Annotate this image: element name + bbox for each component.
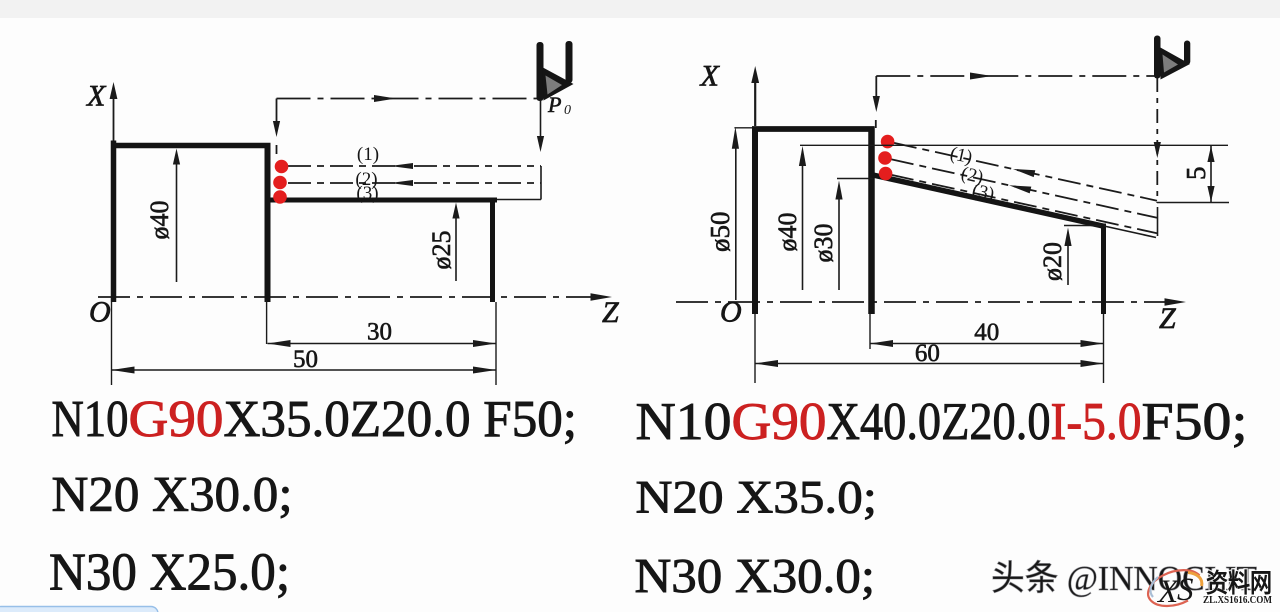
svg-text:N30 X30.0;: N30 X30.0; bbox=[635, 548, 876, 603]
svg-text:40: 40 bbox=[974, 319, 999, 346]
svg-text:N10G90X35.0Z20.0 F50;: N10G90X35.0Z20.0 F50; bbox=[52, 391, 578, 448]
svg-text:60: 60 bbox=[915, 340, 940, 367]
svg-text:Z: Z bbox=[602, 296, 619, 329]
svg-text:N30 X25.0;: N30 X25.0; bbox=[49, 544, 290, 602]
svg-text:ZL.XS1616.COM: ZL.XS1616.COM bbox=[1203, 595, 1272, 606]
svg-text:(1): (1) bbox=[357, 144, 379, 165]
svg-text:30: 30 bbox=[367, 319, 392, 346]
svg-text:ø40: ø40 bbox=[773, 213, 802, 252]
svg-text:资料网: 资料网 bbox=[1206, 569, 1272, 598]
svg-text:P: P bbox=[547, 92, 561, 117]
svg-text:O: O bbox=[89, 296, 111, 329]
svg-text:5: 5 bbox=[1181, 167, 1211, 181]
svg-text:(3): (3) bbox=[356, 183, 378, 204]
svg-text:S: S bbox=[1177, 572, 1194, 608]
svg-text:O: O bbox=[720, 296, 742, 329]
svg-text:ø20: ø20 bbox=[1038, 242, 1067, 281]
svg-text:Z: Z bbox=[1159, 302, 1176, 335]
svg-text:X: X bbox=[86, 80, 107, 113]
svg-text:ø25: ø25 bbox=[427, 231, 456, 270]
svg-text:N10G90X40.0Z20.0I-5.0F50;: N10G90X40.0Z20.0I-5.0F50; bbox=[636, 393, 1248, 451]
svg-text:ø50: ø50 bbox=[705, 212, 735, 253]
svg-text:N20 X30.0;: N20 X30.0; bbox=[52, 466, 293, 522]
svg-text:ø30: ø30 bbox=[809, 224, 838, 263]
svg-text:N20 X35.0;: N20 X35.0; bbox=[636, 472, 878, 524]
svg-text:X: X bbox=[700, 60, 721, 93]
svg-text:50: 50 bbox=[293, 346, 318, 373]
svg-text:0: 0 bbox=[564, 103, 571, 118]
svg-text:ø40: ø40 bbox=[145, 201, 174, 240]
